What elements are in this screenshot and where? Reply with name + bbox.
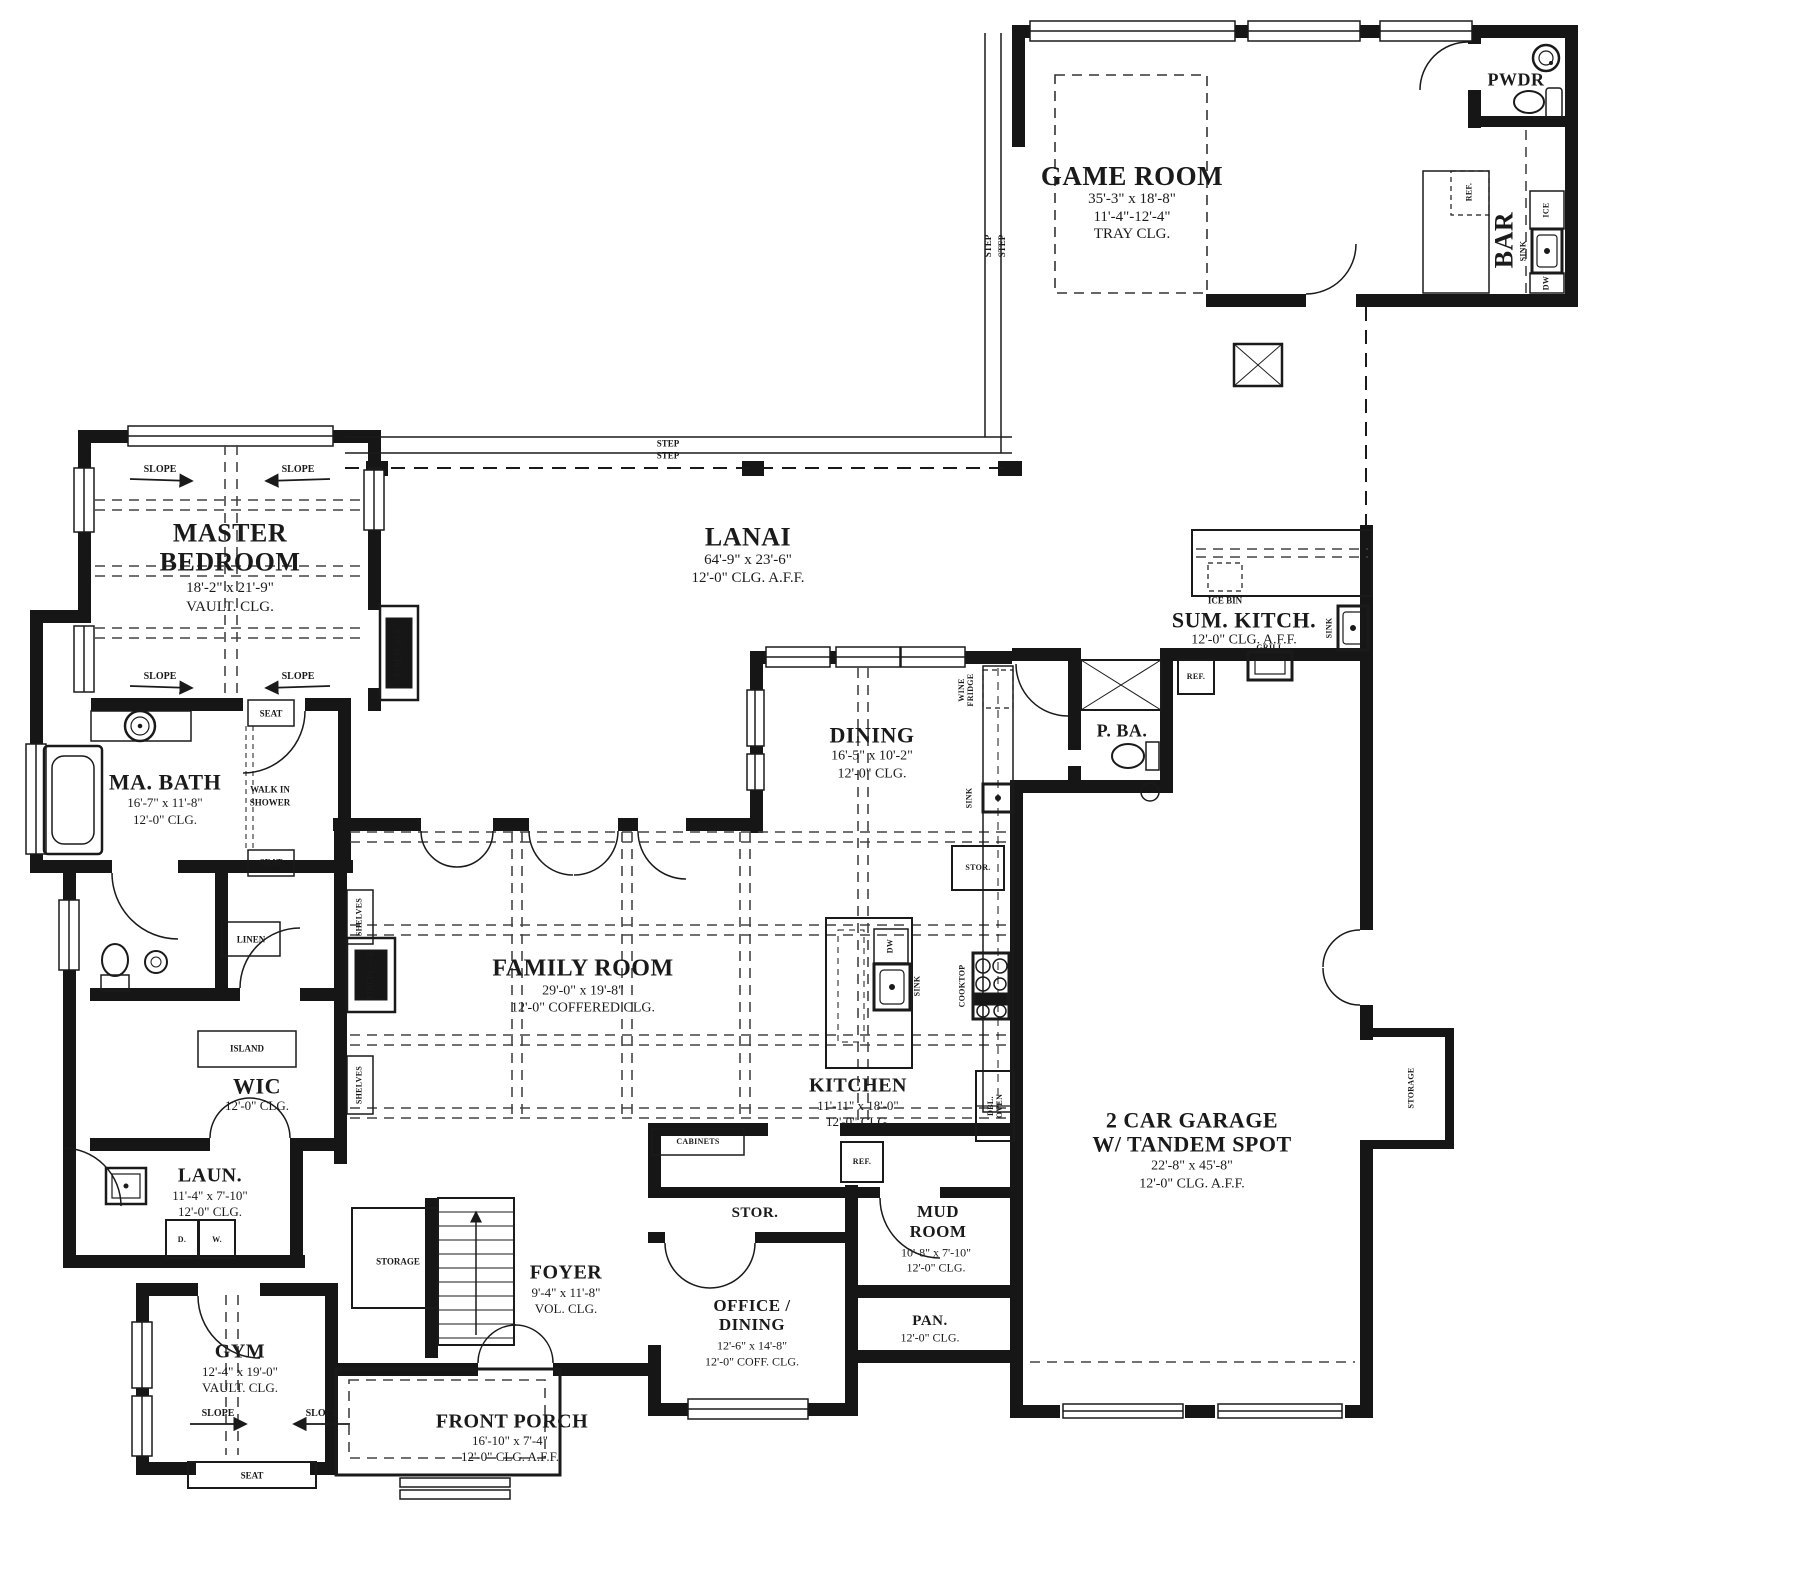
laun-dim: 11'-4" x 7'-10": [172, 1189, 247, 1203]
shelves-label-2: SHELVES: [356, 1066, 365, 1104]
fireplace-label-1: FIREPLACE: [395, 628, 404, 677]
laun-ceiling: 12'-0" CLG.: [178, 1205, 242, 1219]
mud-dim: 10'-8" x 7'-10": [901, 1247, 971, 1260]
ice-bin-label: ICE BIN: [1208, 596, 1242, 605]
room-label-stor: STOR.: [732, 1206, 779, 1222]
lanai-dim: 64'-9" x 23'-6": [704, 553, 792, 569]
game-room-dim: 35'-3" x 18'-8": [1088, 192, 1176, 208]
master-dim: 18'-2" x 21'-9": [186, 581, 274, 597]
slope-label-2: SLOPE: [282, 465, 315, 476]
office-ceiling: 12'-0" COFF. CLG.: [705, 1356, 799, 1369]
gym-ceiling: VAULT. CLG.: [202, 1381, 278, 1395]
slope-label-5: SLOPE: [202, 1409, 235, 1420]
dbl-oven-label: DBL.OVEN: [986, 1094, 1004, 1118]
family-dim: 29'-0" x 19'-8": [542, 985, 624, 1000]
step-label-2: STEP: [657, 451, 680, 460]
room-label-laun: LAUN.: [178, 1166, 242, 1187]
pan-ceiling: 12'-0" CLG.: [900, 1332, 959, 1345]
slope-label-6: SLOPE: [306, 1409, 339, 1420]
bar-ref-label: REF.: [1466, 183, 1475, 201]
grill-label: GRILL: [1256, 644, 1283, 652]
seat-label-3: SEAT: [241, 1471, 264, 1480]
room-label-garage-1: 2 CAR GARAGE: [1106, 1108, 1278, 1131]
walk-in-shower-label-2: SHOWER: [250, 798, 291, 807]
dining-ceiling: 12'-0" CLG.: [838, 768, 907, 783]
kitchen-wall-sink-label: SINK: [966, 788, 975, 809]
room-label-pwdr: PWDR: [1488, 71, 1545, 90]
master-ceiling: VAULT. CLG.: [186, 600, 274, 616]
room-label-office-1: OFFICE /: [713, 1297, 790, 1315]
room-label-kitchen: KITCHEN: [809, 1076, 907, 1097]
room-label-master-2: BEDROOM: [160, 548, 301, 575]
ma-bath-dim: 16'-7" x 11'-8": [127, 796, 202, 810]
room-label-foyer: FOYER: [530, 1263, 603, 1284]
room-label-sum-kitch: SUM. KITCH.: [1172, 608, 1316, 631]
island-label: ISLAND: [230, 1044, 264, 1053]
room-label-pan: PAN.: [912, 1314, 947, 1330]
kitchen-ref-label: REF.: [853, 1158, 871, 1166]
washer-label: W.: [212, 1236, 222, 1244]
seat-label-2: SEAT: [260, 858, 283, 867]
lanai-ceiling: 12'-0" CLG. A.F.F.: [691, 571, 804, 587]
floor-plan: GAME ROOM 35'-3" x 18'-8" 11'-4"-12'-4" …: [0, 0, 1800, 1584]
room-label-game-room: GAME ROOM: [1041, 162, 1223, 190]
slope-arrows: [130, 479, 350, 1424]
kitchen-dim: 11'-11" x 18'-0": [817, 1099, 899, 1113]
wic-ceiling: 12'-0" CLG.: [225, 1099, 289, 1113]
room-label-gym: GYM: [215, 1342, 265, 1363]
linen-label: LINEN: [237, 935, 266, 944]
room-label-ma-bath: MA. BATH: [109, 770, 221, 793]
storage-garage-label: STORAGE: [1408, 1067, 1417, 1108]
game-room-ceiling1: 11'-4"-12'-4": [1093, 210, 1170, 226]
wine-fridge-label: WINEFRIDGE: [957, 674, 975, 707]
room-label-p-ba: P. BA.: [1097, 722, 1148, 741]
stor-closet-label: STOR.: [965, 864, 990, 872]
slope-label-3: SLOPE: [144, 672, 177, 683]
slope-label-1: SLOPE: [144, 465, 177, 476]
walk-in-shower-label-1: WALK IN: [250, 785, 290, 794]
bar-sink-label: SINK: [1520, 241, 1529, 262]
gym-dim: 12'-4" x 19'-0": [202, 1365, 278, 1379]
room-label-family: FAMILY ROOM: [492, 956, 673, 981]
island-sink-label: SINK: [914, 976, 923, 997]
fireplace-label-2: FIREPLACE: [367, 951, 376, 1000]
family-ceiling: 12'-0" COFFERED CLG.: [511, 1002, 655, 1017]
lanai-steps: [345, 33, 1366, 525]
porch-dim: 16'-10" x 7'-4": [472, 1434, 548, 1448]
garage-dim: 22'-8" x 45'-8": [1151, 1160, 1233, 1175]
step-label-4: STEP: [998, 235, 1008, 258]
room-label-lanai: LANAI: [705, 523, 791, 550]
step-label-3: STEP: [984, 235, 994, 258]
casework: [44, 171, 1564, 1499]
room-label-mud-1: MUD: [917, 1203, 959, 1221]
room-label-mud-2: ROOM: [910, 1223, 967, 1241]
exterior-walls: [30, 25, 1578, 1475]
bar-dw-label: DW: [1543, 276, 1552, 290]
slope-label-4: SLOPE: [282, 672, 315, 683]
sum-kitch-ref-label: REF.: [1187, 673, 1205, 681]
island-dw-label: DW: [887, 939, 896, 953]
foyer-dim: 9'-4" x 11'-8": [532, 1286, 601, 1300]
dryer-label: D.: [178, 1236, 186, 1244]
cabinets-label: CABINETS: [676, 1138, 719, 1146]
seat-label-1: SEAT: [260, 709, 283, 718]
ceiling-lines: [95, 75, 1526, 1458]
mud-ceiling: 12'-0" CLG.: [906, 1262, 965, 1275]
foyer-ceiling: VOL. CLG.: [535, 1302, 597, 1316]
step-label-1: STEP: [657, 439, 680, 448]
room-label-office-2: DINING: [719, 1316, 785, 1334]
room-label-wic: WIC: [233, 1074, 281, 1097]
dining-dim: 16'-5" x 10'-2": [831, 750, 913, 765]
room-label-bar: BAR: [1491, 212, 1520, 268]
storage-foyer-label: STORAGE: [376, 1257, 420, 1266]
game-room-ceiling2: TRAY CLG.: [1094, 227, 1170, 243]
room-label-dining: DINING: [830, 723, 915, 746]
office-dim: 12'-6" x 14'-8": [717, 1340, 787, 1353]
ma-bath-ceiling: 12'-0" CLG.: [133, 813, 197, 827]
kitchen-ceiling: 12'-0" CLG.: [826, 1115, 890, 1129]
room-label-garage-2: W/ TANDEM SPOT: [1092, 1132, 1291, 1155]
room-label-master-1: MASTER: [173, 519, 287, 546]
shelves-label-1: SHELVES: [356, 898, 365, 936]
door-swings: [63, 42, 1468, 1363]
bar-ice-label: ICE: [1543, 202, 1552, 217]
room-label-porch: FRONT PORCH: [436, 1412, 588, 1433]
cooktop-label: COOKTOP: [959, 965, 968, 1008]
windows: [26, 21, 1472, 1456]
sum-kitch-sink-label: SINK: [1326, 618, 1335, 639]
porch-ceiling: 12'-0" CLG. A.F.F.: [461, 1450, 559, 1464]
garage-ceiling: 12'-0" CLG. A.F.F.: [1139, 1178, 1245, 1193]
